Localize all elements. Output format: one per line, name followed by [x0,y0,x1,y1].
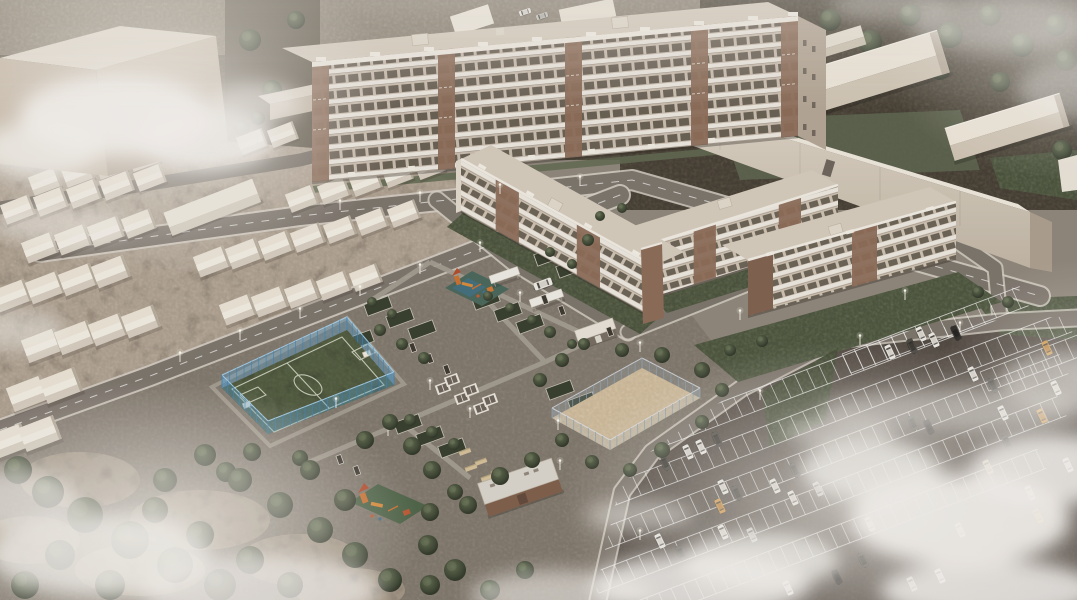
aerial-render [0,0,1077,600]
render-canvas [0,0,1077,600]
sepia-cast [0,0,1077,600]
